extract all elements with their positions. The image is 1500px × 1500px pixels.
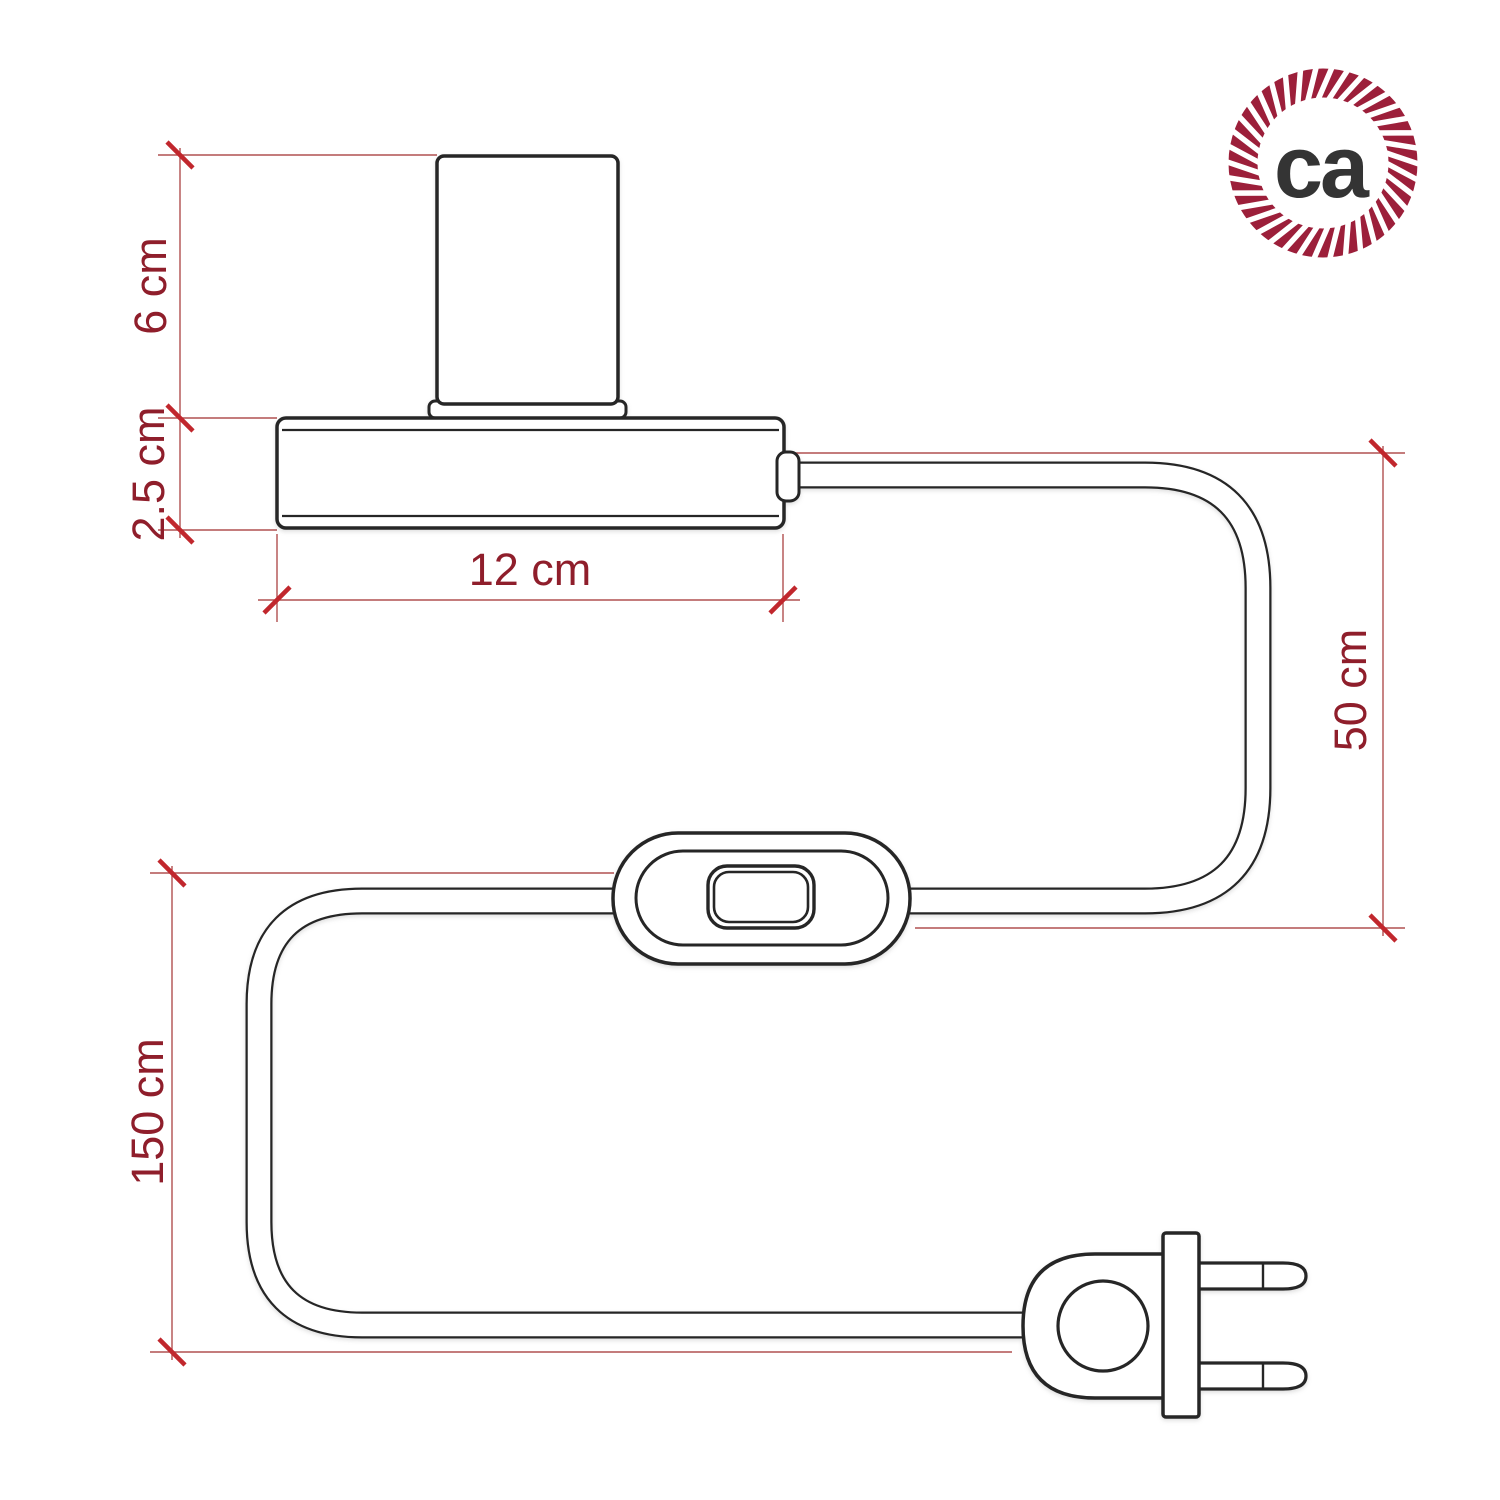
lamp-socket (429, 156, 626, 418)
label-base-height: 2.5 cm (123, 406, 174, 541)
label-cable-lower: 150 cm (122, 1038, 173, 1186)
brand-logo: ca (1224, 64, 1422, 262)
cable-grommet (777, 452, 799, 501)
plug-prong-top (1196, 1263, 1306, 1289)
lamp-base (277, 418, 799, 528)
socket-cylinder (437, 156, 618, 404)
rocker-button (708, 866, 814, 928)
logo-text: ca (1274, 117, 1370, 216)
dimension-drawing: 6 cm 2.5 cm 12 cm 50 cm 150 cm (0, 0, 1500, 1500)
label-socket-height: 6 cm (125, 237, 176, 335)
label-base-width: 12 cm (469, 544, 592, 595)
label-cable-upper: 50 cm (1325, 629, 1376, 752)
inline-switch (613, 833, 910, 964)
plug-faceplate (1163, 1233, 1199, 1417)
dimension-annotations (150, 142, 1405, 1365)
plug-screw-circle (1058, 1281, 1148, 1371)
plug-prong-bottom (1196, 1363, 1306, 1389)
power-plug (1023, 1233, 1306, 1417)
